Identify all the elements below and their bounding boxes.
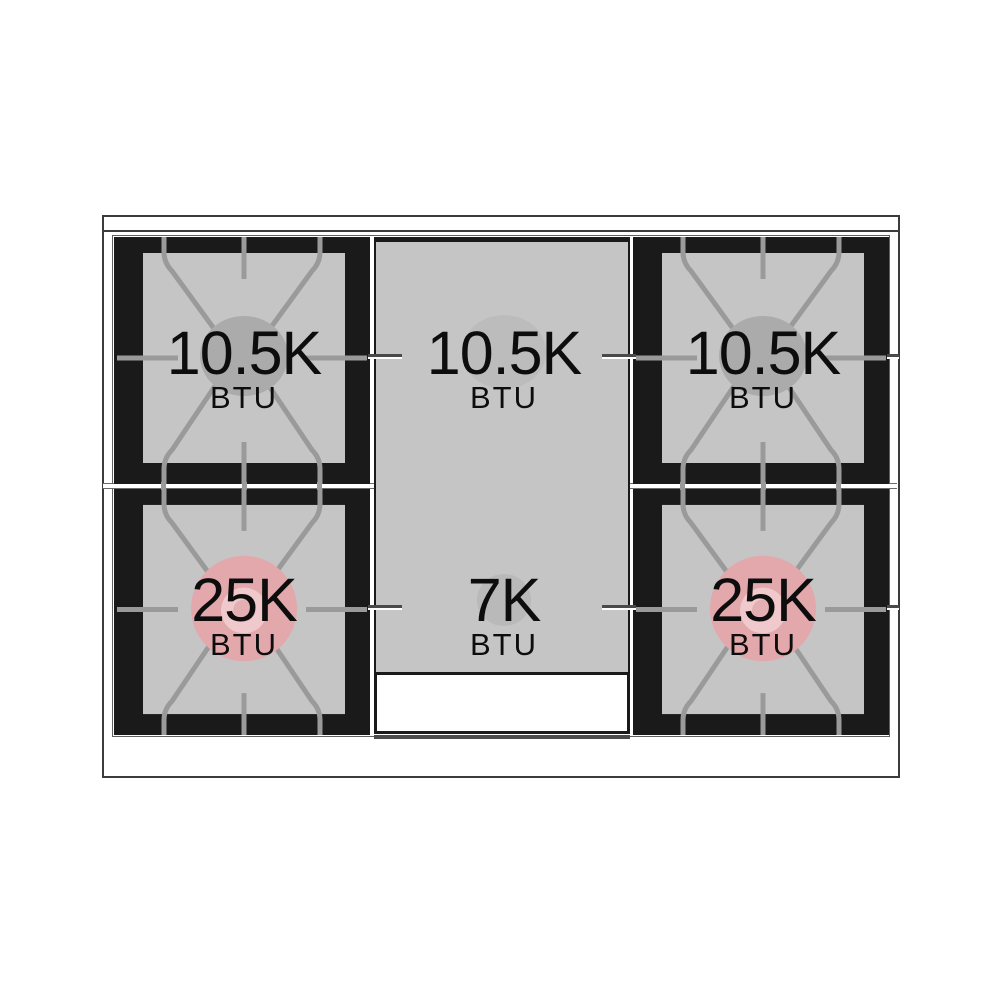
- grate-tick: [161, 482, 166, 490]
- btu-unit-bottom-center: BTU: [384, 629, 624, 660]
- grate-tick: [761, 482, 766, 490]
- grate-tick: [242, 482, 247, 490]
- btu-unit-bottom-right: BTU: [643, 629, 883, 660]
- center-front-edge-line: [374, 735, 630, 739]
- btu-value-top-left: 10.5K: [124, 323, 364, 383]
- btu-unit-bottom-left: BTU: [124, 629, 364, 660]
- grate-tick: [887, 605, 899, 610]
- btu-unit-top-right: BTU: [643, 382, 883, 413]
- grate-tick: [836, 482, 841, 490]
- grate-tick: [887, 354, 899, 359]
- btu-unit-top-left: BTU: [124, 382, 364, 413]
- grate-tick: [317, 482, 322, 490]
- btu-unit-top-center: BTU: [384, 382, 624, 413]
- btu-value-bottom-right: 25K: [643, 570, 883, 630]
- btu-value-top-right: 10.5K: [643, 323, 883, 383]
- grate-tick: [680, 482, 685, 490]
- btu-value-bottom-center: 7K: [384, 570, 624, 630]
- btu-value-bottom-left: 25K: [124, 570, 364, 630]
- btu-value-top-center: 10.5K: [384, 323, 624, 383]
- center-front-strip: [374, 672, 630, 734]
- cooktop-btu-diagram: 10.5K BTU 10.5K BTU 10.5K BTU 25K BTU 7K…: [0, 0, 1000, 1000]
- range-top-edge-line: [102, 230, 900, 232]
